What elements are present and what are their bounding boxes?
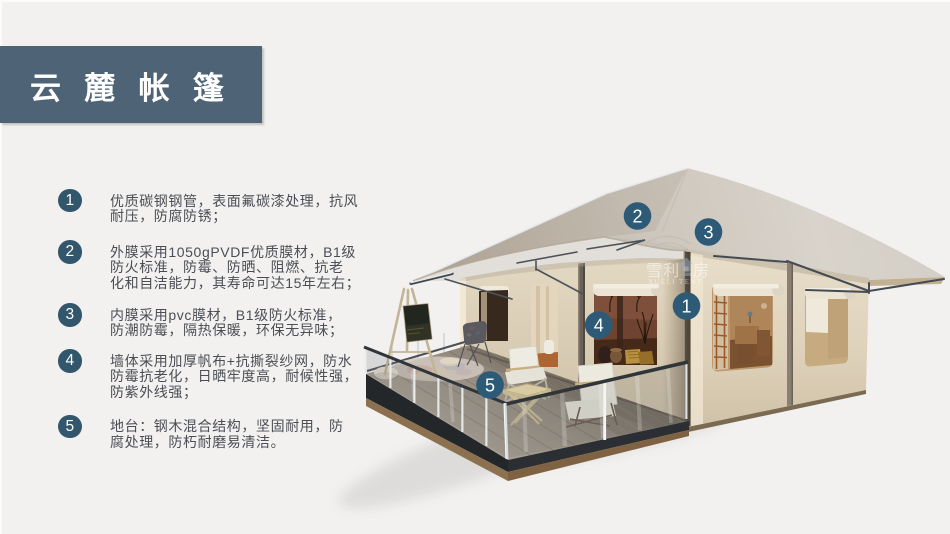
svg-text:5: 5: [485, 376, 495, 396]
svg-text:4: 4: [594, 316, 604, 336]
svg-text:3: 3: [703, 223, 713, 243]
svg-text:XUELI TENT: XUELI TENT: [648, 278, 703, 286]
svg-text:2: 2: [632, 207, 642, 227]
svg-text:1: 1: [681, 297, 691, 317]
